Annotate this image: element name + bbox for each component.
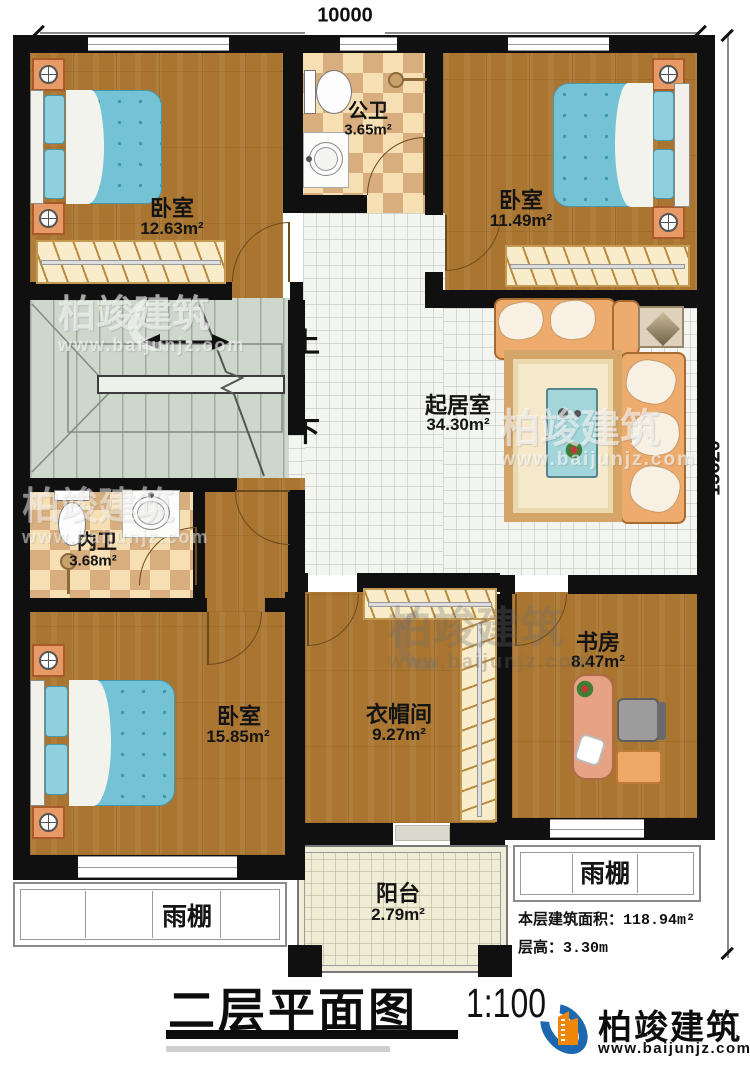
room-label: 雨棚 xyxy=(580,854,630,890)
flower-icon xyxy=(562,438,586,462)
tap-icon xyxy=(148,492,154,498)
stairs-down-label: 下 xyxy=(292,410,320,450)
nightstand xyxy=(32,806,65,839)
wardrobe xyxy=(460,618,497,822)
pillow xyxy=(45,744,68,795)
floor-plan-canvas: 卧室 12.63m² 公卫 3.65m² 卧室 11.49m² 起居室 34.3… xyxy=(0,0,750,1071)
lamp-icon xyxy=(659,65,678,84)
window xyxy=(75,856,240,878)
room-area: 2.79m² xyxy=(371,905,425,925)
clothes-rack xyxy=(36,240,226,284)
room-area: 15.85m² xyxy=(206,727,269,747)
wall xyxy=(285,592,305,855)
living-room-floor-left xyxy=(303,213,445,575)
title-underline xyxy=(166,1030,458,1039)
room-area: 3.68m² xyxy=(69,553,117,570)
tap-icon xyxy=(306,156,312,162)
scale-label: 1:100 xyxy=(466,980,546,1027)
table-lamp-icon xyxy=(646,312,680,346)
wall xyxy=(425,272,443,308)
door-leaf xyxy=(288,222,290,282)
bed-sheet xyxy=(69,680,111,806)
dimension-top-value: 10000 xyxy=(317,5,373,28)
wall xyxy=(290,282,303,300)
nightstand xyxy=(32,58,65,91)
sofa-corner xyxy=(612,300,640,356)
wall xyxy=(283,195,367,213)
flower-icon xyxy=(572,676,598,702)
chair-back xyxy=(657,702,666,740)
pillow xyxy=(45,686,68,737)
room-area: 34.30m² xyxy=(426,415,489,435)
window xyxy=(505,37,612,51)
canopy-left xyxy=(13,882,287,947)
office-chair xyxy=(617,698,659,742)
canopy-divider xyxy=(572,854,573,893)
bed-sheet xyxy=(66,90,104,204)
floor-area-value: 118.94m² xyxy=(623,912,695,929)
wall xyxy=(205,478,237,492)
stairs-linework xyxy=(30,298,288,478)
canopy-divider xyxy=(220,891,221,938)
balcony-pillar xyxy=(478,945,512,977)
pillow xyxy=(44,95,65,144)
dimension-right-value: 13620 xyxy=(703,440,726,496)
lamp-icon xyxy=(39,65,58,84)
window xyxy=(85,37,232,51)
nightstand xyxy=(32,644,65,677)
wall-left xyxy=(13,35,30,880)
title-underline-gray xyxy=(166,1046,390,1052)
floor-area-info: 本层建筑面积：118.94m² xyxy=(518,908,695,929)
bed xyxy=(30,90,162,204)
shower-arm xyxy=(67,570,70,594)
canopy-divider xyxy=(152,891,153,938)
pillow xyxy=(653,91,674,141)
bed xyxy=(553,83,690,207)
floor-height-value: 3.30m xyxy=(563,940,608,957)
wardrobe xyxy=(363,588,497,620)
lamp-icon xyxy=(39,813,58,832)
dimension-line-right xyxy=(727,36,729,958)
bed xyxy=(30,680,175,806)
door-leaf xyxy=(195,527,197,585)
door-leaf xyxy=(307,594,309,646)
balcony-threshold xyxy=(395,825,450,841)
nightstand xyxy=(652,206,685,239)
bed-sheet xyxy=(615,83,653,207)
shower-head-icon xyxy=(388,72,404,88)
wardrobe xyxy=(505,245,690,287)
room-label: 公卫 xyxy=(348,95,388,124)
corner-table xyxy=(638,306,684,348)
floor-height-info: 层高：3.30m xyxy=(518,936,608,957)
side-table xyxy=(616,750,662,784)
nightstand xyxy=(32,202,65,235)
wall-right xyxy=(697,35,715,840)
window xyxy=(547,819,647,838)
sink-icon xyxy=(309,142,343,176)
door-leaf xyxy=(207,612,209,665)
door-leaf xyxy=(423,137,425,195)
room-area: 8.47m² xyxy=(571,652,625,672)
pillow xyxy=(653,149,674,199)
canopy-divider xyxy=(637,854,638,893)
room-area: 12.63m² xyxy=(140,219,203,239)
door-leaf xyxy=(515,594,517,646)
wall xyxy=(13,598,207,612)
wall xyxy=(500,575,515,594)
coffee-table xyxy=(546,388,598,478)
bed-headboard xyxy=(30,90,44,204)
wall xyxy=(497,594,512,818)
room-label: 雨棚 xyxy=(162,897,212,933)
decor-dot xyxy=(558,408,568,418)
brand-logo-icon xyxy=(544,995,594,1063)
wall xyxy=(295,823,393,845)
wall xyxy=(288,573,308,592)
door-leaf xyxy=(445,215,447,271)
room-label: 内卫 xyxy=(77,526,117,555)
dimension-line-top xyxy=(385,32,700,34)
wall xyxy=(425,53,443,215)
door-leaf xyxy=(235,490,290,492)
floor-height-label: 层高： xyxy=(518,939,563,956)
wall xyxy=(283,53,303,195)
lamp-icon xyxy=(39,209,58,228)
window xyxy=(337,37,400,51)
lamp-icon xyxy=(39,651,58,670)
stairs-up-label: 上 xyxy=(292,321,320,361)
room-area: 9.27m² xyxy=(372,725,426,745)
sink-icon xyxy=(132,496,170,530)
bed-headboard xyxy=(30,680,45,806)
toilet-icon xyxy=(316,70,352,114)
room-area: 3.65m² xyxy=(344,122,392,139)
toilet-tank xyxy=(304,70,316,114)
dimension-line-top xyxy=(40,32,305,34)
room-label: 阳台 xyxy=(376,876,420,908)
pillow xyxy=(44,149,65,199)
bed-headboard xyxy=(674,83,690,207)
floor-area-label: 本层建筑面积： xyxy=(518,911,623,928)
room-area: 11.49m² xyxy=(490,211,552,231)
shower-arm xyxy=(403,78,427,81)
decor-dot xyxy=(574,410,581,417)
wall xyxy=(568,575,715,594)
brand-url: www.baijunjz.com xyxy=(598,1040,750,1057)
lamp-icon xyxy=(659,213,678,232)
toilet-tank xyxy=(54,490,90,501)
canopy-divider xyxy=(85,891,86,938)
